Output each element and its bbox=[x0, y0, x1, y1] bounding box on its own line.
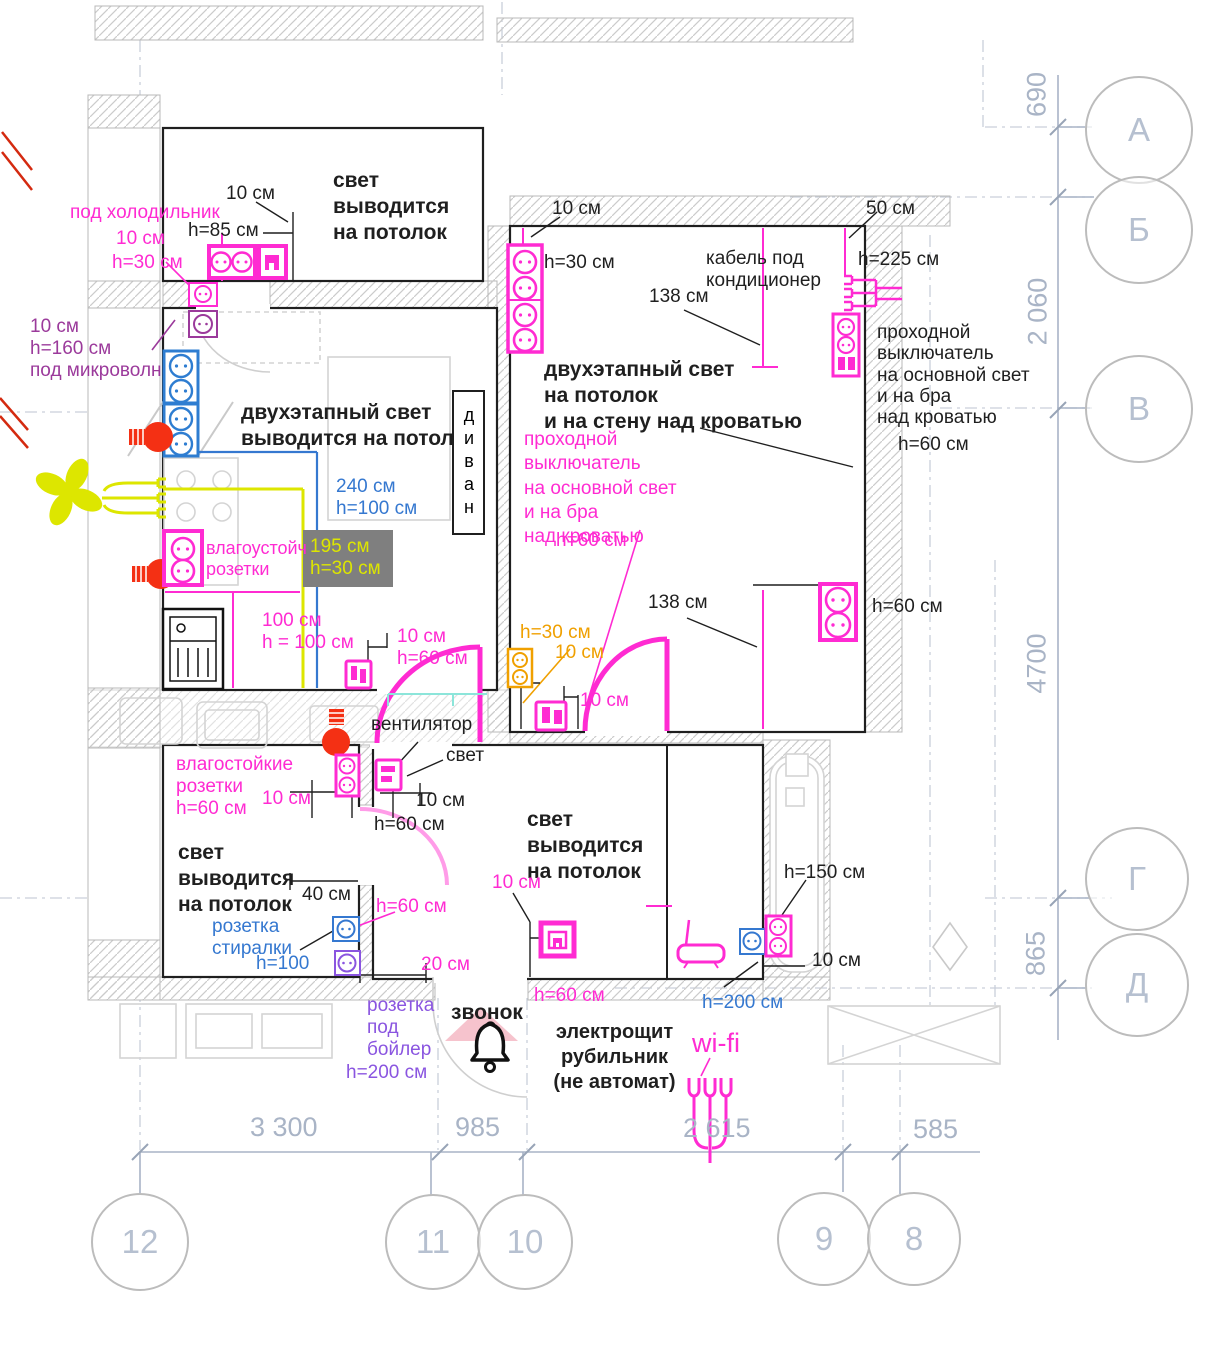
doorbell-label: звонок bbox=[451, 1000, 523, 1026]
bathroom-light-note: свет выводится на потолок bbox=[178, 840, 294, 918]
pass-switch-h-magenta: h=60 см bbox=[556, 530, 627, 552]
bedroom-door-switch bbox=[536, 702, 566, 730]
bedroom-dim-h225: h=225 см bbox=[858, 249, 939, 271]
axis-circle-V: В bbox=[1085, 355, 1193, 463]
dim-right-865: 865 bbox=[1020, 909, 1051, 999]
bathroom-dim-20: 20 см bbox=[421, 954, 470, 976]
floor-plan: под холодильник 10 см h=30 см 10 см h=85… bbox=[0, 0, 1224, 1355]
bathroom-dim-10-black: 10 см bbox=[416, 790, 465, 812]
entry-socket-blue bbox=[740, 929, 765, 954]
fridge-dim-h30: h=30 см bbox=[112, 252, 183, 274]
kitchen-dim-195: 195 см h=30 см bbox=[310, 536, 381, 580]
bedroom-dim-h60-right: h=60 см bbox=[872, 596, 943, 618]
entry-dim-10: 10 см bbox=[812, 950, 861, 972]
axis-circle-B: Б bbox=[1085, 176, 1193, 284]
dim-bottom-985: 985 bbox=[455, 1112, 500, 1143]
axis-circle-9: 9 bbox=[777, 1192, 871, 1286]
bedroom-combo-switch-socket bbox=[833, 314, 859, 376]
axis-circle-10: 10 bbox=[477, 1194, 573, 1290]
axis-circle-12: 12 bbox=[91, 1193, 189, 1291]
bedroom-double-socket bbox=[820, 584, 856, 640]
bedroom-light-note: двухэтапный свет на потолок и на стену н… bbox=[544, 357, 802, 435]
kitchen-wet-socket-note: влагоустойч розетки bbox=[206, 538, 307, 579]
washer-socket-icon bbox=[333, 917, 359, 941]
kitchen-switch-icon bbox=[346, 661, 371, 688]
hall-dim-10: 10 см bbox=[492, 872, 541, 894]
bedroom-door-dim-10: 10 см bbox=[580, 690, 629, 712]
entry-dim-h200: h=200 см bbox=[702, 992, 783, 1014]
hall-dim-h60: h=60 см bbox=[534, 985, 605, 1007]
top-room-light-note: свет выводится на потолок bbox=[333, 168, 449, 246]
axis-circle-11: 11 bbox=[385, 1194, 481, 1290]
entry-double-socket bbox=[766, 916, 791, 956]
boiler-socket-note: розетка под бойлер bbox=[367, 995, 434, 1061]
axis-circle-D: Д bbox=[1085, 933, 1189, 1037]
axis-circle-G: Г bbox=[1085, 827, 1189, 931]
boiler-socket-h: h=200 см bbox=[346, 1062, 427, 1084]
microwave-socket bbox=[189, 311, 217, 337]
ac-cable-note: кабель под кондиционер bbox=[706, 248, 821, 292]
stove-icon bbox=[163, 609, 223, 689]
bedroom-door-socket-orange bbox=[508, 649, 532, 687]
wall-socket-small bbox=[189, 283, 217, 306]
dim-right-2060: 2 060 bbox=[1022, 267, 1053, 357]
pass-switch-note-black: проходной выключатель на основной свет и… bbox=[877, 322, 1030, 428]
door-socket-10: 10 см bbox=[555, 642, 604, 664]
bathroom-dim-40: 40 см bbox=[302, 884, 351, 906]
bedroom-dim-h30: h=30 см bbox=[544, 252, 615, 274]
light-label: свет bbox=[446, 745, 484, 767]
hall-thermostat-icon bbox=[541, 923, 574, 956]
electrical-panel-note: электрощит рубильник (не автомат) bbox=[532, 1020, 697, 1094]
pass-switch-h-black: h=60 см bbox=[898, 434, 969, 456]
bathroom-double-socket bbox=[336, 755, 359, 796]
bedroom-dim-138-top: 138 см bbox=[649, 286, 709, 308]
bathroom-dim-h60-black: h=60 см bbox=[374, 814, 445, 836]
fridge-socket-group bbox=[209, 246, 255, 278]
dim-right-690: 690 bbox=[1021, 50, 1052, 140]
cabinet bbox=[120, 1004, 176, 1058]
door-socket-h30: h=30 см bbox=[520, 622, 591, 644]
axis-circle-8: 8 bbox=[867, 1192, 961, 1286]
top-dim-h85: h=85 см bbox=[188, 220, 259, 242]
microwave-socket-note: 10 см h=160 см под микроволн bbox=[30, 316, 162, 382]
bedroom-dim-10: 10 см bbox=[552, 198, 601, 220]
bathroom-dim-10-magenta: 10 см bbox=[262, 788, 311, 810]
dim-bottom-3300: 3 300 bbox=[250, 1112, 318, 1143]
tv-outlet-icon bbox=[259, 246, 286, 278]
hall-light-note: свет выводится на потолок bbox=[527, 807, 643, 885]
grid-arrow bbox=[933, 923, 967, 970]
top-dim-10: 10 см bbox=[226, 183, 275, 205]
bedroom-dim-50: 50 см bbox=[866, 198, 915, 220]
bathroom-dim-h60-magenta: h=60 см bbox=[376, 896, 447, 918]
dim-bottom-585: 585 bbox=[913, 1114, 958, 1145]
boiler-socket-icon bbox=[335, 951, 360, 975]
cabinet bbox=[186, 1004, 332, 1058]
washer-socket-h: h=100 bbox=[256, 953, 309, 975]
fan-light-switch bbox=[376, 760, 401, 790]
wifi-label: wi-fi bbox=[692, 1028, 740, 1059]
dim-bottom-2615: 2 615 bbox=[683, 1113, 751, 1144]
bedroom-socket-strip bbox=[508, 245, 542, 352]
kitchen-light-note: двухэтапный свет выводится на потолок bbox=[241, 400, 477, 452]
bedroom-dim-138-bottom: 138 см bbox=[648, 592, 708, 614]
kitchen-wet-socket bbox=[164, 531, 202, 585]
fridge-dim-10: 10 см bbox=[116, 228, 165, 250]
sofa-label: диван bbox=[452, 390, 485, 535]
axis-circle-A: А bbox=[1085, 76, 1193, 184]
kitchen-dim-100: 100 см h = 100 см bbox=[262, 610, 354, 654]
kitchen-dim-240: 240 см h=100 см bbox=[336, 476, 417, 520]
fan-label: вентилятор bbox=[371, 714, 472, 736]
entry-dim-h150: h=150 см bbox=[784, 862, 865, 884]
red-wall-marks bbox=[0, 132, 32, 448]
dim-right-4700: 4700 bbox=[1021, 619, 1052, 709]
kitchen-dim-10-60: 10 см h=60 см bbox=[397, 626, 468, 670]
